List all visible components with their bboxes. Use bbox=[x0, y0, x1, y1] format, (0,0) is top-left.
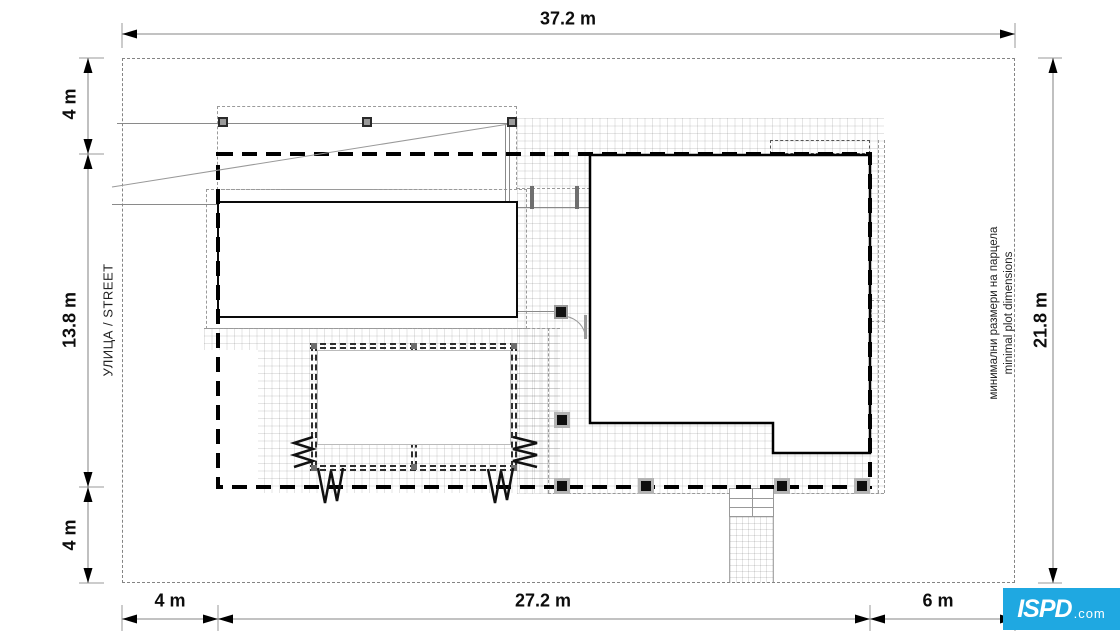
logo-watermark: ISPD .com bbox=[1003, 588, 1120, 630]
street-label: УЛИЦА / STREET bbox=[101, 263, 116, 376]
dimension-lines bbox=[88, 34, 1053, 619]
plant-symbol-right bbox=[513, 437, 537, 467]
dim-right-label: 21.8 m bbox=[1031, 292, 1052, 348]
dim-bottom-left-label: 4 m bbox=[154, 591, 185, 612]
logo-suffix: .com bbox=[1074, 606, 1106, 621]
door-swing-arc bbox=[565, 316, 586, 339]
gate-post bbox=[554, 305, 568, 319]
fence-post bbox=[218, 117, 228, 127]
fence-post bbox=[638, 478, 654, 494]
site-plan: 37.2 m 4 m 13.8 m 4 m 4 m 27.2 m 6 m 21.… bbox=[0, 0, 1120, 632]
dimension-ticks bbox=[79, 23, 1062, 631]
service-diagonal-line bbox=[112, 124, 509, 187]
dim-left-mid-label: 13.8 m bbox=[60, 292, 81, 348]
dim-bottom-right-label: 6 m bbox=[922, 591, 953, 612]
fence-post bbox=[554, 478, 570, 494]
plot-note-bg: минимални размери на парцела bbox=[987, 227, 1002, 400]
dim-bottom-mid-label: 27.2 m bbox=[515, 591, 571, 612]
dim-top-label: 37.2 m bbox=[540, 9, 596, 30]
fence-post bbox=[854, 478, 870, 494]
plot-note-en: minimal plot dimensions bbox=[1002, 227, 1017, 400]
plot-note: минимални размери на парцела minimal plo… bbox=[987, 227, 1017, 400]
dim-left-top-label: 4 m bbox=[60, 88, 81, 119]
logo-mark: ISPD bbox=[1017, 595, 1071, 624]
house-outline bbox=[590, 155, 870, 453]
fence-post bbox=[362, 117, 372, 127]
plant-symbol-left bbox=[294, 437, 313, 467]
dim-left-bottom-label: 4 m bbox=[60, 519, 81, 550]
fence-post bbox=[554, 412, 570, 428]
fence-post bbox=[774, 478, 790, 494]
dimension-arrows bbox=[84, 30, 1058, 624]
fence-post bbox=[507, 117, 517, 127]
